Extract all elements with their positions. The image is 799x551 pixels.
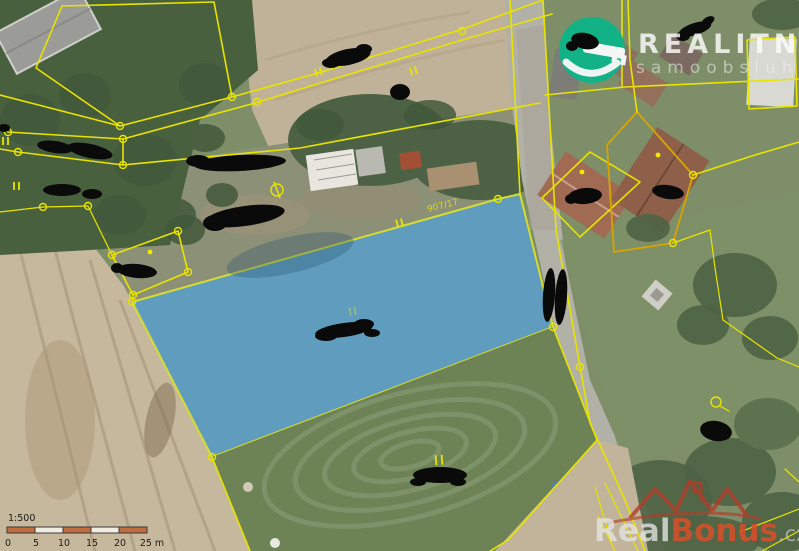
watermark-part3: .cz (778, 522, 799, 546)
scale-tick: 25 m (140, 538, 164, 549)
logo-tagline-text: samoobsluha (636, 58, 799, 78)
scale-tick: 20 (114, 538, 126, 549)
scale-tick: 10 (58, 538, 70, 549)
watermark-part2: Bonus (670, 513, 778, 549)
scale-tick: 15 (86, 538, 98, 549)
svg-text:RealBonus.cz: RealBonus.cz (594, 513, 799, 549)
scale-ratio: 1:500 (8, 513, 35, 524)
scale-tick: 5 (33, 538, 39, 549)
aerial-background (0, 0, 799, 551)
map-canvas[interactable]: 907/17 (0, 0, 799, 551)
logo-brand-text: REALITNÍ (638, 28, 799, 60)
map-viewport: 907/17 (0, 0, 799, 551)
watermark-part1: Real (594, 513, 670, 549)
scale-tick: 0 (5, 538, 11, 549)
